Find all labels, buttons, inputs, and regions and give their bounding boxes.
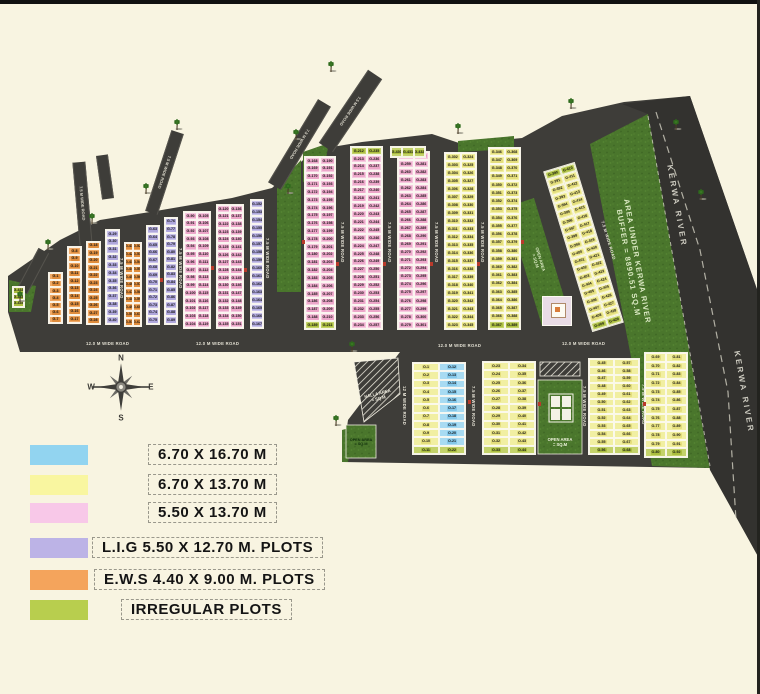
plot-number: O-49 (597, 392, 607, 397)
plot: G-200 (320, 235, 335, 243)
plot: G-157 (251, 240, 263, 248)
legend-row: 5.50 X 13.70 M (30, 502, 325, 523)
plot: G-123 (217, 228, 230, 236)
plot-number: G-381 (506, 257, 518, 262)
plot-number: G-126 (218, 253, 230, 258)
plot-number: G-132 (218, 299, 230, 304)
plot-number: G-240 (368, 188, 380, 193)
plot: G-352 (489, 197, 505, 205)
plot-number: O-90 (672, 433, 682, 438)
plot: G-36 (106, 285, 119, 293)
legend-label: 6.70 X 16.70 M (148, 444, 277, 465)
plot: O-87 (666, 405, 687, 414)
plot-number: O-92 (672, 450, 682, 455)
plot-number: G-337 (462, 259, 474, 264)
plot: O-74 (645, 396, 666, 405)
plot-number: G-218 (353, 196, 365, 201)
plot-number: G-267 (400, 226, 412, 231)
plot: G-243 (367, 210, 383, 218)
plot-number: O-65 (622, 424, 632, 429)
plot-number: O-11 (421, 448, 431, 453)
plot: G-367 (489, 321, 505, 329)
plot: G-196 (320, 204, 335, 212)
plot-number: G-217 (353, 188, 365, 193)
plot-number: O-39 (517, 406, 527, 411)
plot-number: G-233 (353, 315, 365, 320)
plot-number: G-56 (133, 275, 141, 280)
open-area-main-label: OPEN AREA = SQ.M (548, 437, 573, 447)
plot: G-107 (197, 227, 210, 235)
plot: G-137 (230, 213, 243, 221)
plot-number: G-202 (322, 252, 334, 257)
plot: G-330 (461, 201, 477, 209)
plot: G-195 (320, 196, 335, 204)
plot: G-337 (461, 257, 477, 265)
plot-number: G-260 (400, 170, 412, 175)
plot: O-44 (509, 446, 535, 454)
plot: G-293 (414, 257, 430, 265)
plot: G-370 (505, 164, 521, 172)
plot: G-385 (505, 288, 521, 296)
plot-number: G-318 (447, 283, 459, 288)
plot-number: G-77 (166, 227, 176, 232)
plot: G-119 (197, 320, 210, 328)
plot: G-17 (68, 315, 81, 323)
plot-number: G-75 (148, 318, 158, 323)
plot-number: G-273 (400, 274, 412, 279)
plot-number: G-166 (251, 314, 263, 319)
plot: O-89 (666, 422, 687, 431)
palm-tree-icon (289, 127, 303, 141)
plot-number: G-292 (415, 250, 427, 255)
plot-number: O-32 (491, 439, 501, 444)
plot-number: O-41 (517, 422, 527, 427)
plot: G-253 (367, 289, 383, 297)
plot: G-364 (489, 296, 505, 304)
plot: G-46 (125, 281, 133, 289)
plot: O-73 (645, 388, 666, 397)
plot-number: O-69 (651, 355, 661, 360)
plot: G-210 (320, 313, 335, 321)
road-label: 7.5 M WIDE ROAD (340, 222, 345, 263)
plot-number: G-90 (186, 214, 196, 219)
plot: G-109 (197, 243, 210, 251)
plot: G-248 (367, 250, 383, 258)
plot: G-86 (165, 294, 177, 302)
plot-number: G-319 (447, 291, 459, 296)
plot: G-291 (414, 241, 430, 249)
plot: G-69 (147, 271, 159, 279)
plot-number: O-78 (651, 433, 661, 438)
plot: G-336 (461, 249, 477, 257)
plot: G-349 (489, 173, 505, 181)
plot: G-334 (461, 233, 477, 241)
plot-number: G-230 (353, 291, 365, 296)
plot-number: O-33 (491, 448, 501, 453)
plot-number: G-305 (447, 179, 459, 184)
plot: G-220 (351, 210, 367, 218)
plot: G-151 (230, 320, 243, 328)
plot: G-355 (489, 222, 505, 230)
plot: G-60 (133, 303, 141, 311)
plot-number: G-27 (89, 311, 99, 316)
plot: G-230 (351, 289, 367, 297)
plot-number: G-335 (462, 243, 474, 248)
plot: G-229 (351, 282, 367, 290)
plot-number: O-21 (447, 439, 457, 444)
plot: G-32 (106, 254, 119, 262)
plot: O-3 (413, 380, 439, 388)
plot: G-326 (461, 169, 477, 177)
plot: G-310 (445, 217, 461, 225)
plot-number: G-125 (218, 245, 230, 250)
plot-number: G-429 (608, 316, 621, 324)
plot: G-26 (87, 302, 100, 309)
plot: O-53 (589, 422, 614, 430)
plot-number: O-6 (422, 406, 430, 411)
plot-number: G-134 (218, 314, 230, 319)
plot-number: G-133 (218, 306, 230, 311)
plot: G-198 (320, 220, 335, 228)
gate-marker (383, 262, 386, 266)
plot: G-316 (445, 265, 461, 273)
plot: G-49 (125, 303, 133, 311)
plot-number: O-61 (622, 392, 632, 397)
plot-number: G-99 (186, 283, 196, 288)
plot-number: G-300 (415, 315, 427, 320)
plot: O-54 (589, 430, 614, 438)
open-area-small-label: OPEN AREA = SQ.M (350, 438, 372, 446)
plot: G-217 (351, 187, 367, 195)
plot: G-323 (445, 321, 461, 329)
plot-number: G-333 (462, 227, 474, 232)
plot: G-108 (197, 235, 210, 243)
plot-number: G-63 (148, 227, 158, 232)
plot: O-78 (645, 431, 666, 440)
plot: G-306 (445, 185, 461, 193)
plot: O-92 (666, 448, 687, 457)
plot-number: G-342 (462, 299, 474, 304)
plot-number: G-80 (166, 250, 176, 255)
plot-number: G-216 (353, 180, 365, 185)
plot: G-318 (445, 281, 461, 289)
palm-tree-icon (451, 121, 465, 135)
plot-number: G-88 (166, 310, 176, 315)
plot: G-290 (414, 232, 430, 240)
plot: O-61 (614, 391, 639, 399)
plot: G-240 (367, 187, 383, 195)
plot: O-79 (645, 440, 666, 449)
plot-number: G-196 (322, 206, 334, 211)
plot: G-47 (125, 288, 133, 296)
plot-number: G-76 (166, 219, 176, 224)
plot-number: O-40 (517, 414, 527, 419)
plot: G-303 (445, 161, 461, 169)
plot-number: G-113 (198, 275, 210, 280)
plot: G-225 (351, 250, 367, 258)
legend-swatch-green (30, 600, 88, 620)
palm-tree-icon (329, 413, 343, 427)
plot-number: O-25 (491, 381, 501, 386)
plot-number: G-269 (400, 242, 412, 247)
plot-number: G-51 (125, 320, 133, 325)
plot: O-37 (509, 387, 535, 395)
plot-number: G-47 (125, 290, 133, 295)
plot: G-353 (489, 206, 505, 214)
plot: G-201 (320, 243, 335, 251)
plot: O-85 (666, 388, 687, 397)
plot: G-320 (445, 297, 461, 305)
plot: G-106 (197, 220, 210, 228)
plot-number: G-122 (218, 222, 230, 227)
plot: O-67 (614, 438, 639, 446)
plot: G-91 (184, 220, 197, 228)
plot: G-255 (367, 305, 383, 313)
palm-tree-icon (669, 117, 683, 131)
plot: G-131 (217, 290, 230, 298)
plot-number: G-107 (198, 229, 210, 234)
plot-number: G-96 (186, 260, 196, 265)
plot-number: G-106 (198, 221, 210, 226)
plot-number: G-200 (322, 237, 334, 242)
plot-number: G-64 (148, 235, 158, 240)
plot-number: O-63 (622, 408, 632, 413)
plot: G-162 (251, 280, 263, 288)
plot: G-148 (230, 297, 243, 305)
plot-number: G-247 (368, 244, 380, 249)
plot-number: G-163 (251, 290, 263, 295)
plot-number: G-210 (322, 315, 334, 320)
plot: G-62 (133, 318, 141, 326)
plot: G-20 (87, 257, 100, 264)
plot: G-130 (217, 282, 230, 290)
plot: G-324 (461, 153, 477, 161)
gate-marker (477, 262, 480, 266)
plot: G-358 (489, 247, 505, 255)
plot: O-69 (645, 353, 666, 362)
plot-number: G-313 (447, 243, 459, 248)
plot: G-374 (505, 197, 521, 205)
plot-number: G-261 (400, 178, 412, 183)
plot-number: G-326 (462, 171, 474, 176)
gate-marker (302, 240, 305, 244)
plot: G-72 (147, 294, 159, 302)
plot: G-384 (505, 280, 521, 288)
plot: O-62 (614, 399, 639, 407)
plot: O-66 (614, 430, 639, 438)
plot-number: G-367 (491, 323, 503, 328)
plot: G-57 (133, 281, 141, 289)
plot: O-49 (589, 391, 614, 399)
plot: O-91 (666, 440, 687, 449)
plot-number: G-370 (506, 166, 518, 171)
plot: O-26 (483, 387, 509, 395)
plot: G-301 (414, 321, 430, 329)
plot: G-128 (217, 267, 230, 275)
plot-block: G-152G-153G-154G-155G-156G-157G-158G-159… (250, 199, 264, 329)
plot-number: G-170 (307, 174, 319, 179)
plot-number: G-231 (353, 299, 365, 304)
plot-number: O-77 (651, 424, 661, 429)
plot: G-187 (305, 306, 320, 314)
plot: G-329 (461, 193, 477, 201)
plot: G-249 (367, 258, 383, 266)
plot-number: G-85 (166, 288, 176, 293)
plot: G-361 (489, 271, 505, 279)
plot-number: O-13 (447, 373, 457, 378)
palm-tree-icon (564, 96, 578, 110)
plot-number: G-298 (415, 299, 427, 304)
plot: O-40 (509, 412, 535, 420)
plot: G-186 (305, 298, 320, 306)
plot-number: G-229 (353, 283, 365, 288)
plot-number: O-24 (491, 372, 501, 377)
plot-number: G-184 (307, 284, 319, 289)
plot-number: G-213 (353, 157, 365, 162)
plot: G-39 (106, 308, 119, 316)
plot-number: G-264 (400, 202, 412, 207)
plot-number: O-7 (422, 414, 430, 419)
plot-number: G-144 (231, 268, 243, 273)
plot-number: G-355 (491, 224, 503, 229)
plot: G-101 (184, 297, 197, 305)
plot-number: G-188 (307, 315, 319, 320)
plot-number: O-64 (622, 416, 632, 421)
plot-number: G-52 (133, 244, 141, 249)
plot: G-365 (489, 304, 505, 312)
plot-number: G-279 (400, 323, 412, 328)
gate-marker (643, 402, 646, 406)
plot-block: G-212G-213G-214G-215G-216G-217G-218G-219… (350, 146, 383, 330)
plot-block: G-29G-30G-31G-32G-33G-34G-35G-36G-37G-38… (105, 229, 120, 325)
plot-number: G-266 (400, 218, 412, 223)
plot: G-219 (351, 202, 367, 210)
plot-number: G-376 (506, 216, 518, 221)
plot-number: G-62 (133, 320, 141, 325)
plot-number: G-249 (368, 259, 380, 264)
plot-number: G-156 (251, 234, 263, 239)
plot-number: G-71 (148, 288, 158, 293)
palm-tree-icon (281, 181, 295, 195)
plot-number: G-9 (71, 256, 79, 261)
plot: G-54 (133, 258, 141, 266)
plot-number: G-322 (447, 315, 459, 320)
plot: G-292 (414, 249, 430, 257)
plot: G-43 (125, 258, 133, 266)
plot: G-216 (351, 179, 367, 187)
plot-block: G-1G-2G-3G-4G-5G-6G-7 (48, 272, 63, 324)
plot-number: G-353 (491, 207, 503, 212)
plot: G-181 (305, 259, 320, 267)
gate-marker (160, 278, 163, 282)
plot-number: G-244 (368, 220, 380, 225)
plot-number: G-67 (148, 258, 158, 263)
plot-number: G-186 (307, 299, 319, 304)
plot-number: G-158 (251, 250, 263, 255)
plot-number: G-338 (462, 267, 474, 272)
plot-number: G-297 (415, 290, 427, 295)
plot: O-60 (614, 383, 639, 391)
plot-number: G-349 (491, 174, 503, 179)
plot-number: G-182 (307, 268, 319, 273)
plot: G-227 (351, 266, 367, 274)
plot-number: G-20 (89, 258, 99, 263)
plot-number: G-206 (322, 284, 334, 289)
plot-number: G-35 (108, 279, 118, 284)
plot-number: O-89 (672, 424, 682, 429)
plot: G-347 (489, 156, 505, 164)
legend: 6.70 X 16.70 M6.70 X 13.70 M5.50 X 13.70… (30, 444, 325, 620)
temple-dot (555, 307, 560, 312)
plot: G-38 (106, 301, 119, 309)
plot-number: G-242 (368, 204, 380, 209)
plot: G-265 (398, 208, 414, 216)
plot-number: G-146 (231, 283, 243, 288)
plot-number: G-4 (52, 296, 60, 301)
plot: G-100 (184, 289, 197, 297)
plot-number: G-329 (462, 195, 474, 200)
plot-number: O-2 (422, 373, 430, 378)
road-label: 12.0 M WIDE ROAD (86, 341, 129, 346)
plot-number: G-168 (307, 159, 319, 164)
plot-number: G-48 (125, 297, 133, 302)
plot-number: G-39 (108, 310, 118, 315)
plot-number: G-325 (462, 163, 474, 168)
plot: G-161 (251, 272, 263, 280)
plot: G-380 (505, 247, 521, 255)
plot: G-339 (461, 273, 477, 281)
plot: G-28 (87, 317, 100, 324)
plot-number: G-223 (353, 236, 365, 241)
plot-number: O-52 (597, 416, 607, 421)
plot: G-309 (445, 209, 461, 217)
road-label: 12.0 M WIDE ROAD (562, 341, 605, 346)
plot-number: G-365 (491, 306, 503, 311)
plot-number: G-3 (52, 289, 60, 294)
plot-number: G-141 (231, 245, 243, 250)
site-layout-map: AREA UNDER KERWA RIVER BUFFER = 8890.51 … (0, 0, 760, 694)
gate-marker (244, 268, 247, 272)
plot-number: O-37 (517, 389, 527, 394)
plot: G-94 (184, 243, 197, 251)
plot: O-30 (483, 421, 509, 429)
plot: O-86 (666, 396, 687, 405)
plot-number: G-147 (231, 291, 243, 296)
plot: G-184 (305, 282, 320, 290)
plot-number: G-192 (322, 174, 334, 179)
plot: G-44 (125, 266, 133, 274)
plot: G-373 (505, 189, 521, 197)
plot: G-281 (414, 160, 430, 168)
plot: G-176 (305, 220, 320, 228)
road-label: 12.0 M WIDE ROAD (438, 343, 481, 348)
plot: G-285 (414, 192, 430, 200)
plot-number: G-386 (506, 298, 518, 303)
plot-number: G-286 (415, 202, 427, 207)
plot: G-120 (217, 205, 230, 213)
plot: G-302 (445, 153, 461, 161)
plot: O-17 (439, 404, 465, 412)
plot-number: G-236 (368, 157, 380, 162)
plot-number: G-130 (218, 283, 230, 288)
plot: G-231 (351, 297, 367, 305)
plot-number: G-291 (415, 242, 427, 247)
plot: G-159 (251, 256, 263, 264)
plot-number: G-152 (251, 202, 263, 207)
plot: G-149 (230, 305, 243, 313)
road-label: 7.5 M WIDE ROAD (119, 258, 124, 299)
plot-number: G-87 (166, 303, 176, 308)
